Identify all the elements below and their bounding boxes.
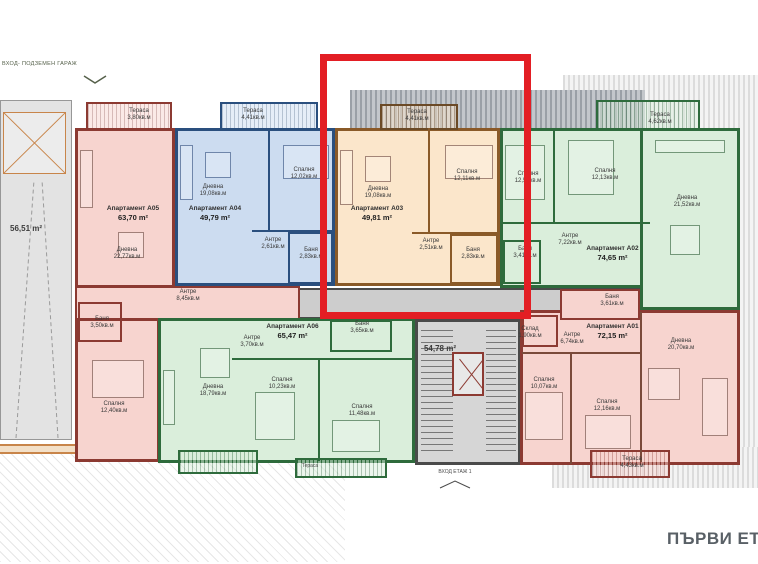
ramp-area-label: 56,51 m² [10,224,42,233]
apartment-label-a06: Апартамент А0665,47 m² [245,323,340,340]
room-label-a01-terrace: Тераса4,43кв.м [607,456,657,470]
apartment-a02-living-block [640,128,740,310]
room-label-a01-bedroom-2: Спалня12,16кв.м [582,399,632,413]
room-label-a01-bedroom-1: Спалня10,07кв.м [519,377,569,391]
room-label-a05-bath: Баня3,50кв.м [80,316,124,330]
furniture-bed [585,415,631,449]
wall-a01-bedrooms [522,352,640,354]
furniture-bed [525,392,563,440]
room-label-a06-bedroom-2: Спалня11,48кв.м [337,404,387,418]
furniture-table [200,348,230,378]
room-label-a04-terrace: Тераса4,41кв.м [228,108,278,122]
highlight-box-a03 [320,54,531,319]
room-label-a02-terrace: Тераса4,62кв.м [635,112,685,126]
furniture-sofa [163,370,175,425]
room-label-a06-terrace: Тераса [285,463,335,469]
apartment-a06-terrace [178,450,258,474]
apartment-label-a02: Апартамент А0274,65 m² [565,245,660,262]
furniture-bed [255,392,295,440]
room-label-a05-hall: Антре8,45кв.м [163,289,213,303]
room-label-a05-terrace: Тераса3,80кв.м [114,108,164,122]
wall-a01-divider-1 [570,352,572,464]
furniture-sofa [80,150,93,208]
furniture-sofa [655,140,725,153]
room-label-a06-living: Дневна18,79кв.м [188,384,238,398]
furniture-bed [92,360,144,398]
furniture-sofa [702,378,728,436]
furniture-bed [332,420,380,452]
room-label-a05-living: Дневна22,77кв.м [102,247,152,261]
garage-ramp-platform [3,112,66,174]
elevator-icon [452,352,484,396]
room-label-a01-bath: Баня3,61кв.м [587,294,637,308]
room-label-a06-bedroom-1: Спалня10,23кв.м [257,377,307,391]
room-label-a05-bedroom: Спалня12,40кв.м [89,401,139,415]
room-label-a04-living: Дневна19,08кв.м [188,184,238,198]
apartment-label-a05: Апартамент А0563,70 m² [88,205,178,222]
wall-a02-divider [553,128,555,223]
garage-entrance-label: ВХОД- ПОДЗЕМЕН ГАРАЖ [2,61,77,67]
room-label-a01-living: Дневна20,70кв.м [656,338,706,352]
room-label-a02-bedroom-2: Спалня12,13кв.м [580,168,630,182]
floor-plan-canvas: ВХОД- ПОДЗЕМЕН ГАРАЖ 56,51 m² 54,78 m² В… [0,0,758,564]
floor-title: ПЪРВИ ЕТА [667,529,758,549]
room-label-a02-living: Дневна21,52кв.м [662,195,712,209]
building-entrance-label: ВХОД ЕТАЖ 1 [425,469,485,475]
stairwell-area-label: 54,78 m² [405,344,475,353]
wall-a06-bedrooms [232,358,415,360]
wall-a04-divider [268,128,270,232]
furniture-table [670,225,700,255]
room-label-a06-bath: Баня3,65кв.м [337,321,387,335]
furniture-table [648,368,680,400]
stair-flight-right [486,330,516,454]
apartment-label-a04: Апартамент А0449,79 m² [170,205,260,222]
furniture-table [205,152,231,178]
ramp-cross-lines [4,113,65,173]
apartment-label-a01: Апартамент А0172,15 m² [565,323,660,340]
wall-a06-divider [318,358,320,461]
